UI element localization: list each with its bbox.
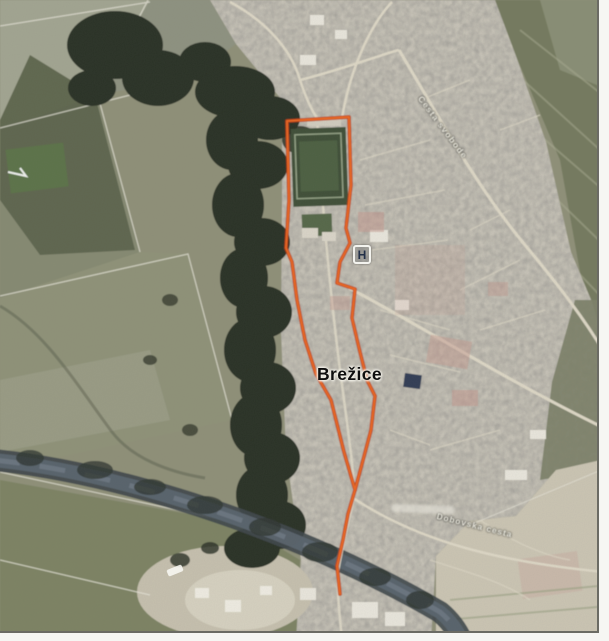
scan-grain xyxy=(0,0,609,641)
scan-margin-right xyxy=(599,0,609,641)
hospital-marker-icon: H xyxy=(353,245,371,264)
town-label: Brežice xyxy=(317,364,382,385)
scan-margin-bottom xyxy=(0,633,609,641)
aerial-map: Brežice H Cesta svobode Dobovska cesta xyxy=(0,0,609,641)
aerial-photo-canvas xyxy=(0,0,609,641)
